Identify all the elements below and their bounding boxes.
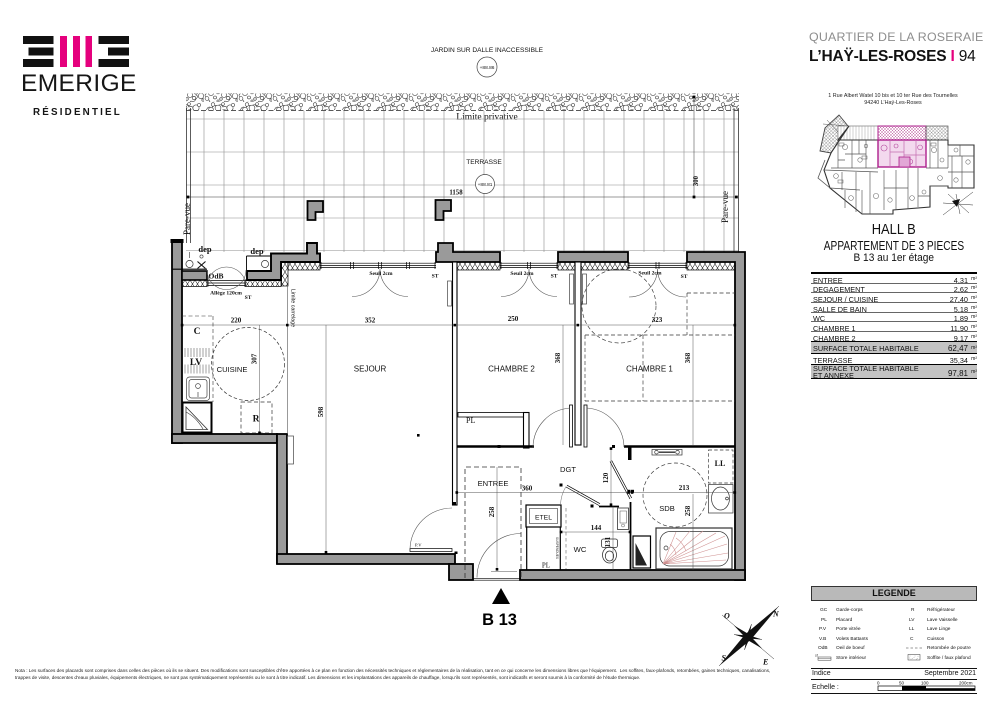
svg-text:R: R bbox=[253, 415, 260, 425]
svg-text:CUISINE: CUISINE bbox=[217, 365, 248, 374]
svg-text:DGT: DGT bbox=[560, 465, 576, 474]
svg-text:E: E bbox=[762, 658, 768, 667]
svg-text:ENTREE: ENTREE bbox=[478, 479, 509, 488]
svg-text:dep: dep bbox=[250, 246, 264, 256]
svg-text:OdB: OdB bbox=[208, 272, 223, 281]
svg-text:LV: LV bbox=[190, 358, 202, 368]
svg-text:323: 323 bbox=[652, 316, 663, 324]
svg-text:100: 100 bbox=[921, 680, 929, 685]
svg-text:Allège 120cm: Allège 120cm bbox=[210, 291, 242, 297]
svg-text:0: 0 bbox=[877, 680, 880, 685]
svg-text:ST: ST bbox=[551, 274, 558, 280]
svg-text:50: 50 bbox=[899, 680, 905, 685]
svg-text:+88.86: +88.86 bbox=[480, 65, 495, 71]
svg-text:SUSPENDUES: SUSPENDUES bbox=[555, 537, 559, 559]
svg-text:220: 220 bbox=[231, 317, 242, 325]
svg-text:LL: LL bbox=[715, 459, 726, 468]
svg-text:SDB: SDB bbox=[659, 504, 675, 513]
svg-text:P.V: P.V bbox=[415, 543, 422, 548]
svg-text:200cm: 200cm bbox=[959, 680, 973, 685]
svg-text:Limite carrelage: Limite carrelage bbox=[290, 289, 296, 327]
svg-text:ETEL: ETEL bbox=[535, 515, 552, 522]
svg-text:SEJOUR: SEJOUR bbox=[354, 365, 387, 374]
svg-text:PL: PL bbox=[542, 562, 550, 570]
svg-text:1158: 1158 bbox=[449, 190, 463, 197]
svg-text:Seuil 2cm: Seuil 2cm bbox=[369, 271, 392, 277]
svg-text:+88.81: +88.81 bbox=[478, 182, 493, 188]
svg-text:N: N bbox=[772, 610, 780, 619]
svg-text:Seuil 2cm: Seuil 2cm bbox=[510, 271, 533, 277]
svg-text:JARDIN SUR DALLE INACCESSIBLE: JARDIN SUR DALLE INACCESSIBLE bbox=[431, 47, 544, 54]
svg-text:598: 598 bbox=[317, 406, 325, 417]
svg-text:ST: ST bbox=[681, 274, 688, 280]
svg-text:CHAMBRE 2: CHAMBRE 2 bbox=[488, 365, 535, 374]
svg-text:258: 258 bbox=[684, 505, 692, 516]
svg-text:352: 352 bbox=[365, 317, 376, 325]
svg-text:Pare-vue: Pare-vue bbox=[720, 191, 730, 223]
svg-text:144: 144 bbox=[591, 524, 602, 532]
svg-text:S: S bbox=[722, 654, 727, 663]
svg-text:250: 250 bbox=[508, 315, 519, 323]
svg-text:B 13: B 13 bbox=[482, 611, 517, 629]
svg-text:dep: dep bbox=[198, 244, 212, 254]
svg-text:368: 368 bbox=[554, 352, 562, 363]
svg-text:CHAMBRE 1: CHAMBRE 1 bbox=[626, 365, 673, 374]
svg-text:307: 307 bbox=[251, 353, 259, 364]
svg-text:ST: ST bbox=[245, 295, 252, 301]
svg-text:120: 120 bbox=[602, 472, 610, 483]
svg-text:PL: PL bbox=[466, 416, 475, 425]
svg-text:360: 360 bbox=[522, 485, 533, 493]
svg-text:TERRASSE: TERRASSE bbox=[466, 159, 502, 166]
svg-text:368: 368 bbox=[684, 352, 692, 363]
svg-text:WC: WC bbox=[574, 545, 587, 554]
svg-text:C: C bbox=[194, 327, 201, 337]
svg-text:ST: ST bbox=[432, 274, 439, 280]
svg-text:O: O bbox=[724, 612, 730, 621]
svg-text:131: 131 bbox=[604, 536, 612, 547]
svg-text:213: 213 bbox=[679, 484, 690, 492]
svg-text:258: 258 bbox=[488, 506, 496, 517]
svg-text:Pare-vue: Pare-vue bbox=[182, 203, 192, 235]
svg-text:Seuil 2cm: Seuil 2cm bbox=[638, 271, 661, 277]
svg-text:Limite privative: Limite privative bbox=[456, 113, 517, 123]
